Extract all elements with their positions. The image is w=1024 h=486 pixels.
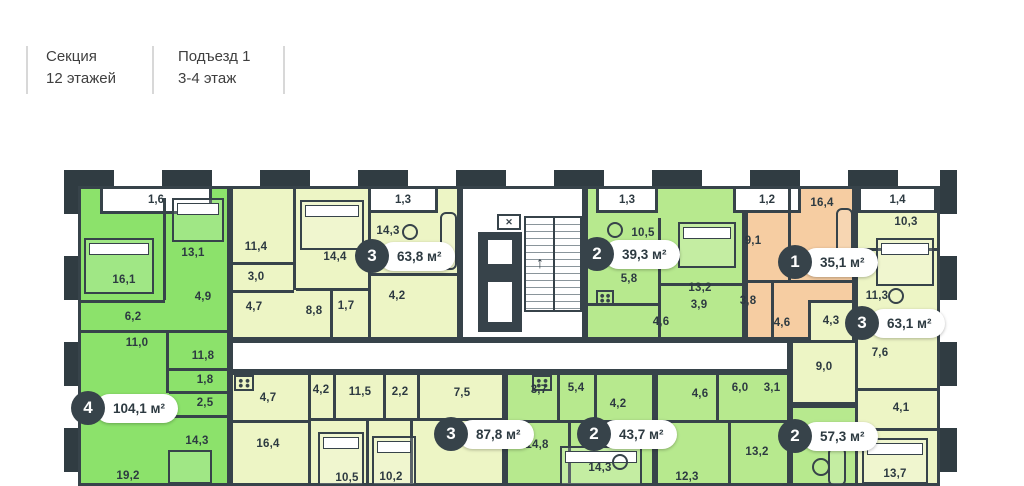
- wall-segment: [383, 372, 386, 419]
- stove-icon: [596, 290, 614, 306]
- apartment-rooms-count: 2: [580, 237, 614, 271]
- wall-segment: [81, 330, 227, 333]
- room-area-label: 10,5: [335, 472, 358, 484]
- apartment-badge-87-8[interactable]: 3 87,8 м²: [434, 417, 534, 451]
- wall-segment: [169, 368, 227, 371]
- room-area-label: 13,7: [883, 468, 906, 480]
- room-area-label: 14,3: [185, 435, 208, 447]
- wall-segment: [163, 198, 166, 300]
- wall-segment: [728, 423, 731, 486]
- balcony: 1,3: [368, 186, 438, 213]
- apartment-rooms-count: 3: [355, 239, 389, 273]
- apartment-badge-39-3[interactable]: 2 39,3 м²: [580, 237, 680, 271]
- stove-icon: [234, 375, 254, 391]
- room-area-label: 4,9: [195, 291, 212, 303]
- wall-segment: [293, 186, 296, 290]
- apartment-total-area: 63,8 м²: [379, 242, 455, 271]
- wall-segment: [771, 283, 774, 340]
- room-area-label: 7,5: [454, 387, 471, 399]
- room-area-label: 4,7: [246, 301, 263, 313]
- staircase: ↑: [524, 216, 582, 312]
- table-icon: [888, 288, 904, 304]
- apartment-total-area: 43,7 м²: [601, 420, 677, 449]
- room-area-label: 10,3: [894, 216, 917, 228]
- outer-wall-top: [64, 170, 957, 186]
- room-area-label: 4,2: [389, 290, 406, 302]
- apartment-badge-104-1[interactable]: 4 104,1 м²: [71, 391, 178, 425]
- room-area-label: 4,6: [653, 316, 670, 328]
- room-area-label: 6,0: [732, 382, 749, 394]
- apartment-rooms-count: 3: [845, 306, 879, 340]
- room-area-label: 4,2: [610, 398, 627, 410]
- room-area-label: 4,2: [313, 384, 330, 396]
- room-area-label: 1,7: [338, 300, 355, 312]
- bed-icon: [876, 238, 934, 286]
- room-area-label: 14,3: [376, 225, 399, 237]
- room-area-label: 4,1: [893, 402, 910, 414]
- wall-segment: [417, 372, 420, 419]
- room-area-label: 1,8: [197, 374, 214, 386]
- room-area-label: 3,9: [691, 299, 708, 311]
- room-area-label: 13,2: [745, 446, 768, 458]
- room-area-label: 3,8: [740, 295, 757, 307]
- room-area-label: 1,6: [148, 194, 164, 206]
- apartment-total-area: 57,3 м²: [802, 422, 878, 451]
- wall-segment: [557, 372, 560, 421]
- room-area-label: 1,3: [619, 194, 635, 206]
- room-area-label: 19,2: [116, 470, 139, 482]
- room-area-label: 16,4: [810, 197, 833, 209]
- apartment-rooms-count: 3: [434, 417, 468, 451]
- stairs-up-arrow-icon: ↑: [536, 255, 544, 273]
- apartment-badge-63-8[interactable]: 3 63,8 м²: [355, 239, 455, 273]
- room-area-label: 4,3: [823, 315, 840, 327]
- table-icon: [607, 222, 623, 238]
- room-area-label: 4,6: [774, 317, 791, 329]
- apartment-rooms-count: 1: [778, 245, 812, 279]
- balcony: 1,4: [858, 186, 937, 213]
- wall-segment: [858, 388, 938, 391]
- room-area-label: 4,7: [260, 392, 277, 404]
- wall-segment: [366, 421, 369, 486]
- room-area-label: 2,5: [197, 397, 214, 409]
- floorplan-canvas: 1,6 1,3 1,3 1,2 1,4 ✕ ↑: [0, 0, 1024, 486]
- room-area-label: 16,4: [256, 438, 279, 450]
- apartment-rooms-count: 4: [71, 391, 105, 425]
- room-area-label: 1,2: [759, 194, 775, 206]
- apartment-total-area: 39,3 м²: [604, 240, 680, 269]
- wall-segment: [296, 288, 370, 291]
- room-area-label: 11,8: [192, 350, 215, 362]
- room-area-label: 12,3: [675, 471, 698, 483]
- wall-segment: [166, 333, 169, 393]
- vent-shaft-icon: ✕: [497, 214, 521, 230]
- room-area-label: 2,2: [392, 386, 409, 398]
- room-area-label: 11,5: [349, 386, 372, 398]
- wall-segment: [658, 420, 789, 423]
- room-area-label: 11,0: [126, 337, 149, 349]
- apartment-total-area: 35,1 м²: [802, 248, 878, 277]
- room-area-label: 1,4: [890, 194, 906, 206]
- wall-segment: [333, 372, 336, 419]
- room-area-label: 13,2: [688, 282, 711, 294]
- wall-segment: [330, 291, 333, 340]
- room-area-label: 11,3: [866, 290, 889, 302]
- apartment-rooms-count: 2: [778, 419, 812, 453]
- apartment-rooms-count: 2: [577, 417, 611, 451]
- wall-segment: [308, 372, 311, 486]
- room-area-label: 8,8: [306, 305, 323, 317]
- table-icon: [402, 224, 418, 240]
- room-area-label: 14,3: [588, 462, 611, 474]
- apartment-badge-43-7[interactable]: 2 43,7 м²: [577, 417, 677, 451]
- wall-segment: [371, 273, 459, 276]
- apartment-total-area: 87,8 м²: [458, 420, 534, 449]
- wall-segment: [81, 300, 165, 303]
- floorplan-page: { "header": { "section_label": "Секция",…: [0, 0, 1024, 486]
- apartment-badge-57-3[interactable]: 2 57,3 м²: [778, 419, 878, 453]
- room-area-label: 16,1: [112, 274, 135, 286]
- room-area-label: 4,6: [692, 388, 709, 400]
- room-area-label: 3,7: [531, 384, 548, 396]
- room-area-label: 3,0: [248, 271, 265, 283]
- room-area-label: 3,1: [764, 382, 781, 394]
- apartment-badge-35-1[interactable]: 1 35,1 м²: [778, 245, 878, 279]
- bed-icon: [172, 198, 224, 242]
- elevator-icon: [486, 280, 514, 324]
- apartment-total-area: 63,1 м²: [869, 309, 945, 338]
- wall-segment: [233, 420, 309, 423]
- room-area-label: 10,2: [379, 471, 402, 483]
- room-area-label: 9,1: [745, 235, 762, 247]
- bed-icon: [678, 222, 736, 268]
- room-area-label: 9,0: [816, 361, 833, 373]
- wall-segment: [233, 262, 294, 265]
- table-icon: [612, 454, 628, 470]
- room-area-label: 5,4: [568, 382, 585, 394]
- apartment-badge-63-1[interactable]: 3 63,1 м²: [845, 306, 945, 340]
- room-area-label: 14,4: [323, 251, 346, 263]
- elevator-icon: [486, 238, 514, 266]
- room-area-label: 5,8: [621, 273, 638, 285]
- wall-segment: [748, 280, 852, 283]
- table-icon: [168, 450, 212, 484]
- table-icon: [812, 458, 830, 476]
- room-area-label: 6,2: [125, 311, 142, 323]
- corridor: [230, 340, 790, 372]
- apartment-total-area: 104,1 м²: [95, 394, 178, 423]
- wall-segment: [594, 372, 597, 421]
- outer-wall-left: [64, 170, 78, 486]
- room-area-label: 7,6: [872, 347, 889, 359]
- room-area-label: 1,3: [395, 194, 411, 206]
- room-area-label: 11,4: [245, 241, 268, 253]
- balcony: 1,3: [596, 186, 658, 213]
- wall-segment: [716, 372, 719, 421]
- wall-segment: [233, 290, 294, 293]
- room-area-label: 13,1: [181, 247, 204, 259]
